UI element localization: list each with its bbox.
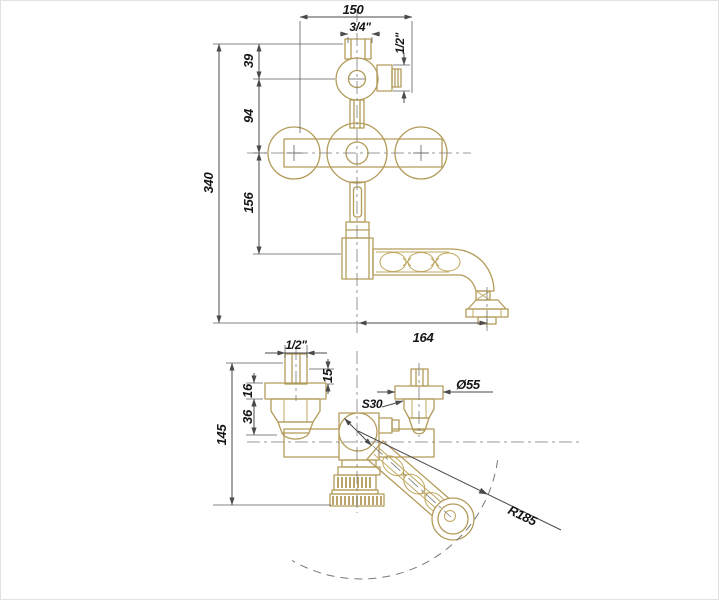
drawing-canvas: 150 3/4" 1/2" 39 94 156 340 164 <box>1 1 719 600</box>
faucet-technical-drawing-page: 150 3/4" 1/2" 39 94 156 340 164 <box>0 0 719 600</box>
front-view: 150 3/4" 1/2" 39 94 156 340 164 <box>201 2 508 345</box>
dim-label-15: 15 <box>320 368 335 383</box>
s30-leader <box>382 401 403 407</box>
dim-label-s30: S30 <box>362 397 383 411</box>
thread-label-half-front: 1/2" <box>393 32 407 54</box>
dim-label-16: 16 <box>240 383 255 398</box>
dim-label-39: 39 <box>241 53 256 68</box>
plan-view: 1/2" 15 16 36 145 Ø55 S30 R185 <box>213 338 583 579</box>
dim-label-340: 340 <box>201 172 216 194</box>
dim-label-36: 36 <box>240 409 255 424</box>
dim-label-145: 145 <box>214 424 229 446</box>
dim-label-diameter-55: Ø55 <box>456 377 481 392</box>
thread-label-half-plan: 1/2" <box>285 338 307 352</box>
radius-arrowhead <box>479 488 488 495</box>
dim-label-164: 164 <box>413 330 435 345</box>
dim-label-94: 94 <box>241 108 256 123</box>
thread-label-three-quarter: 3/4" <box>349 20 371 34</box>
faucet-front-body <box>268 39 508 324</box>
dim-label-156: 156 <box>241 192 256 214</box>
dim-label-r185: R185 <box>506 502 540 529</box>
dim-label-150: 150 <box>343 2 365 17</box>
